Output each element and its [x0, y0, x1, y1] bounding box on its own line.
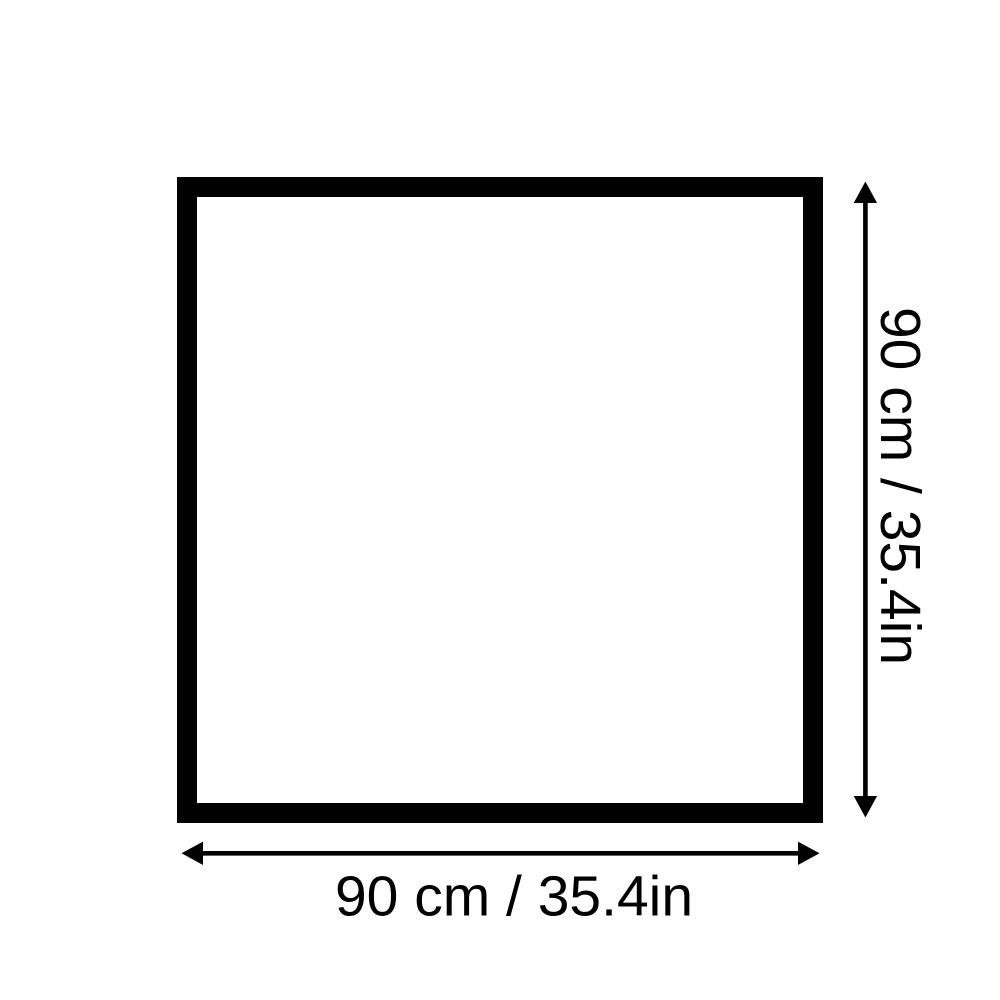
svg-text:90 cm / 35.4in: 90 cm / 35.4in — [868, 307, 932, 665]
svg-text:90 cm / 35.4in: 90 cm / 35.4in — [335, 865, 693, 929]
